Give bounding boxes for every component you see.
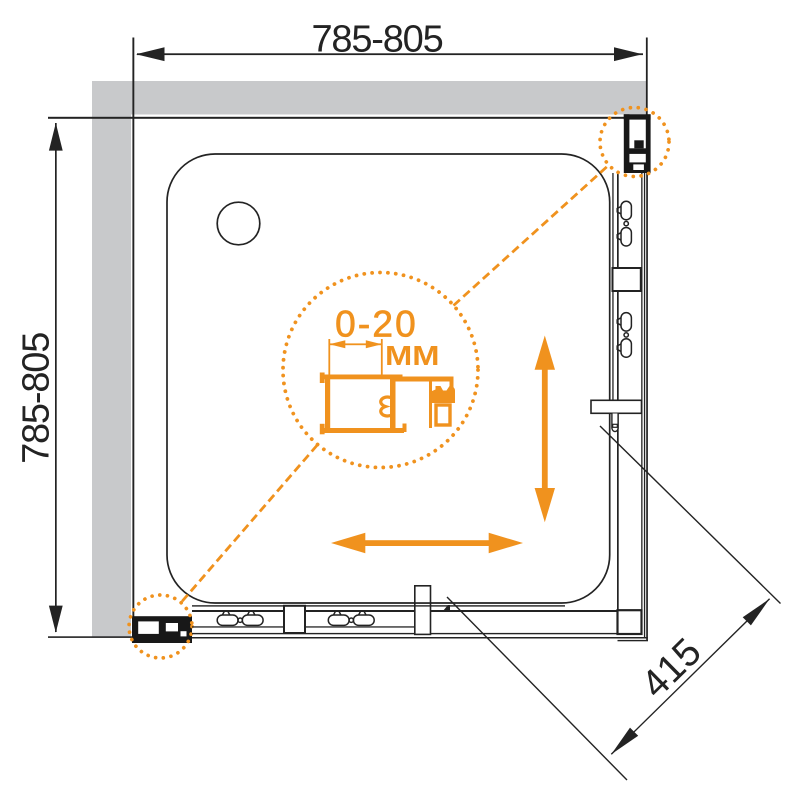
svg-text:785-805: 785-805 [311,19,442,61]
svg-text:MM: MM [385,340,440,371]
svg-text:0-20: 0-20 [335,303,418,344]
svg-text:785-805: 785-805 [16,333,58,464]
